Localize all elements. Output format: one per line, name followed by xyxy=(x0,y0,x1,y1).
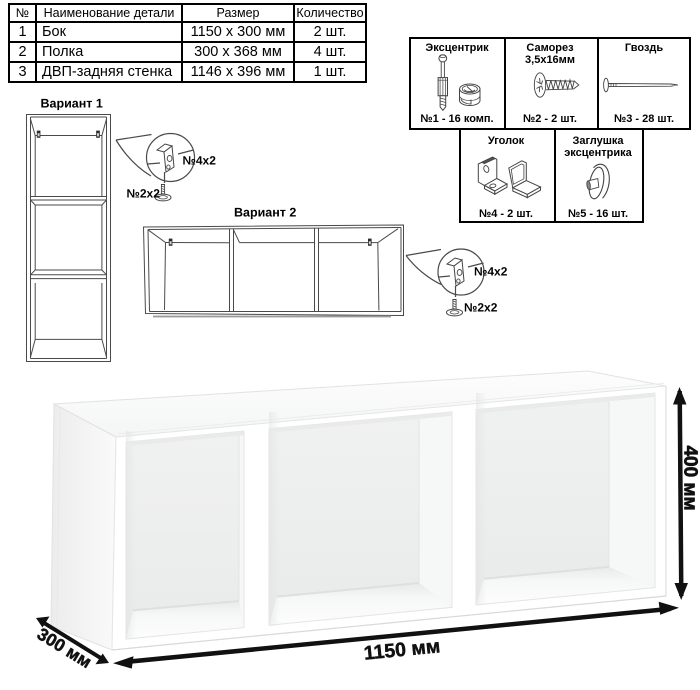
svg-text:Вариант 1: Вариант 1 xyxy=(41,97,103,111)
svg-text:№2х2: №2х2 xyxy=(464,301,498,315)
svg-text:№4х2: №4х2 xyxy=(183,154,217,168)
svg-text:№4х2: №4х2 xyxy=(474,265,508,279)
svg-text:Вариант 2: Вариант 2 xyxy=(234,206,296,220)
svg-text:№2х2: №2х2 xyxy=(127,187,161,201)
svg-text:400 мм: 400 мм xyxy=(680,445,700,510)
